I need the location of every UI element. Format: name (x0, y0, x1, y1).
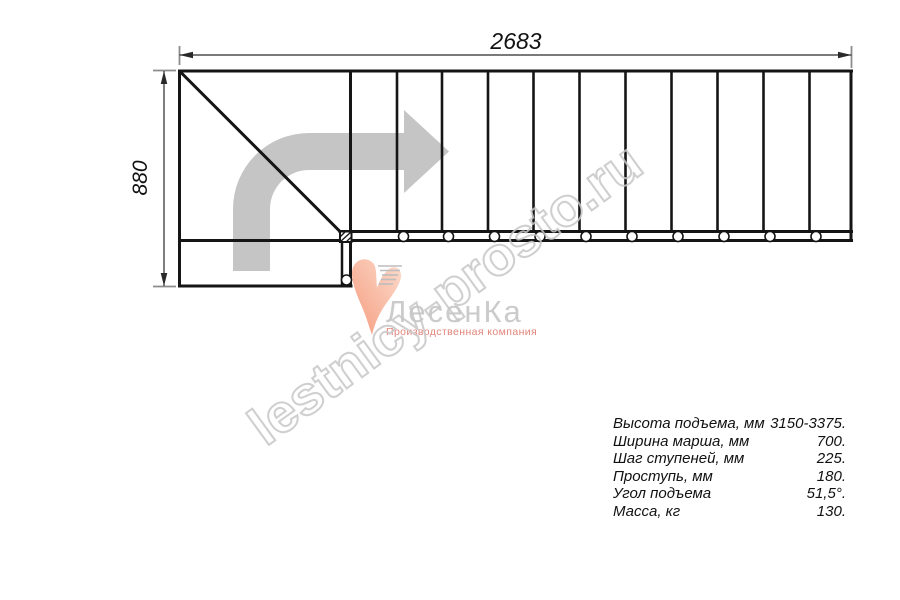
width-dimension: 880 (129, 71, 176, 287)
spec-value: 3150-3375. (770, 415, 846, 433)
spec-label: Высота подъема, мм (613, 415, 765, 433)
spec-value: 51,5°. (807, 485, 846, 503)
spec-row-step-pitch: Шаг ступеней, мм 225. (613, 450, 846, 468)
spec-value: 130. (817, 503, 846, 521)
spec-label: Ширина марша, мм (613, 433, 749, 451)
spec-value: 700. (817, 433, 846, 451)
stair-drawing-page: ЛесенКа Производственная компания (0, 0, 900, 600)
spec-row-flight-width: Ширина марша, мм 700. (613, 433, 846, 451)
length-dimension: 2683 (180, 28, 852, 68)
spec-value: 225. (817, 450, 846, 468)
spec-label: Угол подъема (613, 485, 711, 503)
specs-table: Высота подъема, мм 3150-3375. Ширина мар… (613, 415, 846, 520)
spec-label: Проступь, мм (613, 468, 713, 486)
length-dimension-label: 2683 (489, 28, 541, 54)
spec-label: Масса, кг (613, 503, 680, 521)
spec-row-mass: Масса, кг 130. (613, 503, 846, 521)
spec-row-tread: Проступь, мм 180. (613, 468, 846, 486)
spec-row-angle: Угол подъема 51,5°. (613, 485, 846, 503)
width-dimension-label: 880 (129, 160, 152, 195)
spec-value: 180. (817, 468, 846, 486)
spec-row-height: Высота подъема, мм 3150-3375. (613, 415, 846, 433)
joint-hatch-square (340, 232, 352, 243)
spec-label: Шаг ступеней, мм (613, 450, 744, 468)
watermark-text: lestnicy-prosto.ru (238, 132, 654, 457)
